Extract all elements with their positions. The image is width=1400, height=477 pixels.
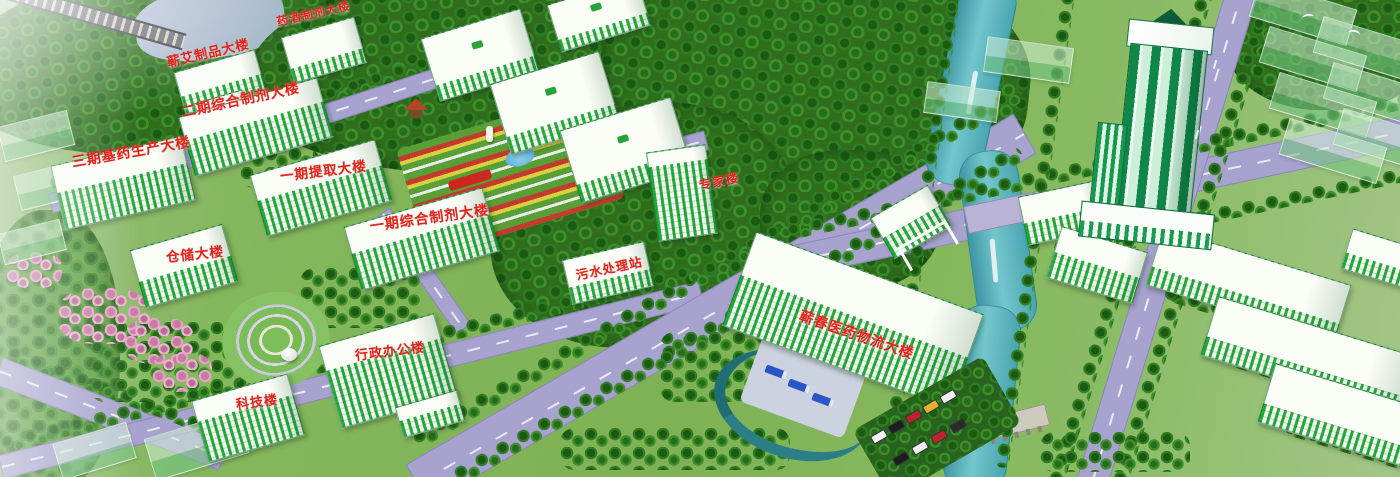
car [939,389,957,405]
warehouse-building [130,224,239,308]
car [949,418,967,434]
mist-overlay [0,0,320,130]
car [870,429,888,445]
office-tower [1070,1,1244,250]
car [892,451,910,467]
car [930,429,948,445]
car [911,440,929,456]
roof-logo [617,134,630,144]
tree-cluster [1040,432,1190,472]
factory-building [1340,228,1400,289]
roof-logo [471,40,484,50]
dome-pavilion [281,348,297,361]
roof-logo [590,2,603,12]
expert-building [646,144,718,241]
roof-logo [545,86,558,96]
statue [486,126,493,142]
pink-blossom-trees [152,352,212,392]
pavilion-base [410,110,422,118]
campus-aerial-rendering: 药酒制剂大楼 蕲艾制品大楼 二期综合制剂大楼 三期基药生产大楼 一期提取大楼 一… [0,0,1400,477]
car [887,419,905,435]
car [905,409,923,425]
car [922,399,940,415]
